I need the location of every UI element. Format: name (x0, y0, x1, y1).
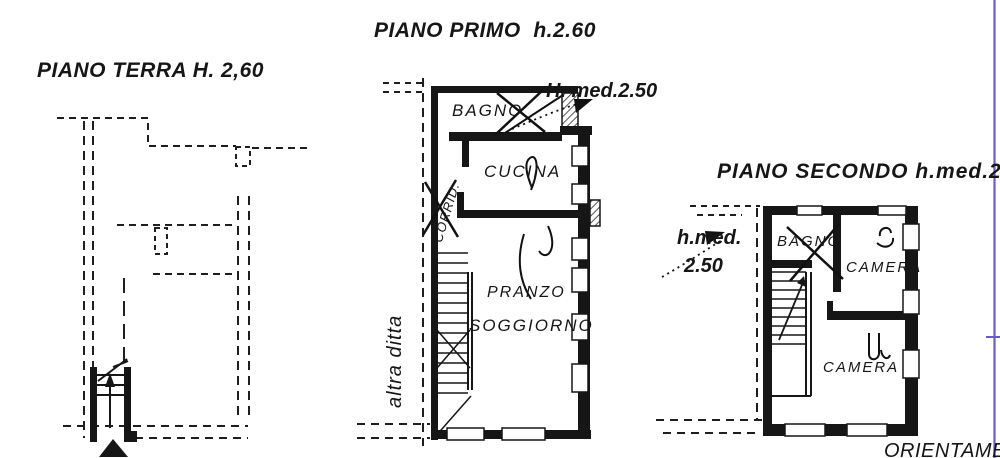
secondo-height-note-line2: 2.50 (684, 255, 723, 277)
secondo-height-note-line1: h.med. (677, 227, 741, 249)
plan-primo-title: PIANO PRIMO h.2.60 (374, 19, 596, 42)
room-label-bagno-primo: BAGNO (452, 102, 523, 121)
entrance-arrow-icon (99, 439, 128, 457)
plan-terra-title: PIANO TERRA H. 2,60 (37, 59, 264, 82)
orientation-label: ORIENTAMEN (884, 440, 1000, 458)
adjacent-property-label: altra ditta (384, 315, 406, 408)
plan-secondo-stair (772, 272, 811, 396)
scan-fold-line (986, 0, 1000, 458)
room-label-bagno-secondo: BAGNO (777, 234, 841, 251)
room-label-camera-1: CAMERA (846, 260, 922, 277)
room-label-cucina: CUCINA (484, 163, 561, 182)
plan-terra-stair (90, 359, 137, 442)
room-label-pranzo: PRANZO (487, 284, 566, 302)
scanned-floor-plan-page: PIANO TERRA H. 2,60 PIANO PRIMO h.2.60 P… (0, 0, 1000, 458)
plan-primo-stair (434, 253, 472, 438)
room-label-camera-2: CAMERA (823, 360, 899, 377)
room-label-soggiorno: SOGGIORNO (469, 317, 594, 336)
plan-secondo-title: PIANO SECONDO h.med.2 (717, 160, 1000, 183)
primo-height-note: H. med.2.50 (546, 80, 657, 102)
